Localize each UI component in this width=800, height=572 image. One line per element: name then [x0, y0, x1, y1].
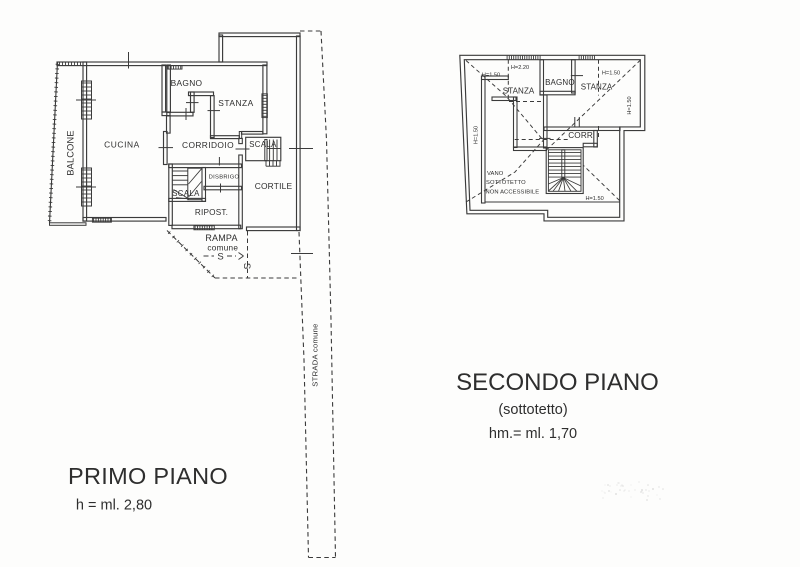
- svg-text:BAGNO: BAGNO: [171, 78, 203, 88]
- svg-text:SOTTOTETTO: SOTTOTETTO: [486, 180, 526, 186]
- svg-text:H=1.50: H=1.50: [482, 73, 500, 79]
- svg-text:STRADA comune: STRADA comune: [311, 323, 320, 386]
- svg-text:CORTILE: CORTILE: [255, 181, 293, 191]
- svg-text:STANZA: STANZA: [503, 86, 535, 95]
- svg-text:CORRIDOIO: CORRIDOIO: [182, 140, 234, 150]
- svg-text:H=1.50: H=1.50: [602, 71, 620, 77]
- svg-text:h = ml. 2,80: h = ml. 2,80: [76, 498, 152, 514]
- svg-text:CORR: CORR: [568, 131, 593, 140]
- svg-text:SCALA: SCALA: [172, 189, 200, 198]
- svg-text:hm.= ml. 1,70: hm.= ml. 1,70: [489, 426, 577, 442]
- svg-text:SECONDO PIANO: SECONDO PIANO: [456, 369, 659, 396]
- svg-text:DISBRIGO: DISBRIGO: [209, 175, 240, 181]
- svg-text:H=1.50: H=1.50: [627, 96, 633, 114]
- svg-text:H=1.50: H=1.50: [585, 196, 603, 202]
- svg-text:(sottotetto): (sottotetto): [498, 402, 567, 418]
- svg-text:S: S: [217, 252, 223, 263]
- svg-text:RAMPA: RAMPA: [205, 233, 237, 243]
- svg-text:RIPOST.: RIPOST.: [195, 208, 228, 217]
- svg-text:VANO: VANO: [487, 171, 504, 177]
- svg-text:PRIMO PIANO: PRIMO PIANO: [68, 463, 228, 489]
- svg-text:S: S: [241, 263, 252, 269]
- svg-text:H=1.50: H=1.50: [474, 126, 480, 144]
- svg-text:NON ACCESSIBILE: NON ACCESSIBILE: [486, 189, 540, 195]
- svg-text:STANZA: STANZA: [581, 82, 613, 91]
- svg-text:comune: comune: [207, 243, 238, 252]
- svg-text:STANZA: STANZA: [218, 98, 253, 108]
- svg-text:BALCONE: BALCONE: [66, 130, 76, 175]
- svg-text:CUCINA: CUCINA: [104, 140, 140, 150]
- svg-text:H=2.20: H=2.20: [511, 65, 529, 71]
- svg-text:BAGNO: BAGNO: [545, 78, 575, 87]
- svg-text:SCALA: SCALA: [249, 140, 277, 149]
